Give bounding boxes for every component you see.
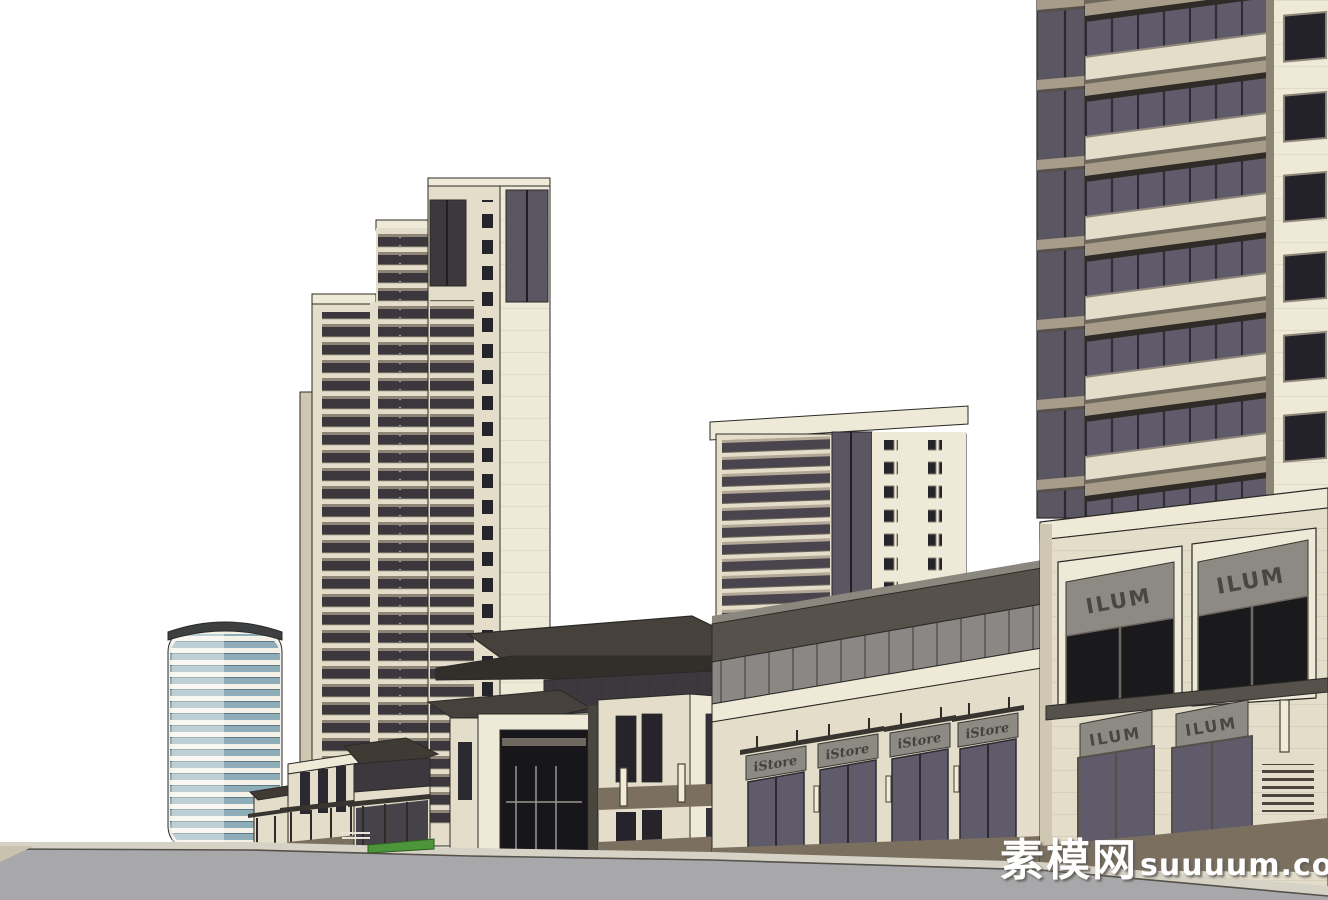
render-canvas: iStore iStore iStore iStore [0,0,1328,900]
storefront-istore: iStore [812,718,884,858]
ilum-retail-podium: ILUM ILUM ILUM ILUM [1040,488,1328,892]
architectural-render: iStore iStore iStore iStore [0,0,1328,900]
storefront-ilum: ILUM [1058,546,1182,712]
wall-sconce-lamp [1280,700,1289,752]
storefront-ilum: ILUM [1192,528,1316,706]
balcony-stack [378,232,428,820]
storefront-istore: iStore [884,707,956,856]
window-column [1280,5,1328,570]
vent-grille [1262,764,1314,812]
